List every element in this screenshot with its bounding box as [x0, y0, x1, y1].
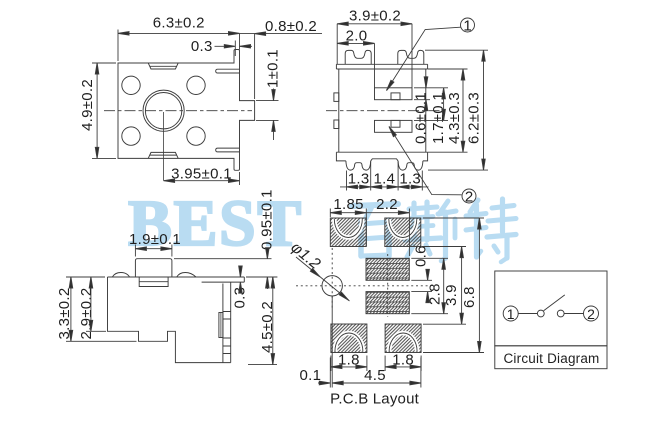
svg-text:2: 2	[465, 188, 473, 205]
svg-text:3.9: 3.9	[443, 284, 460, 306]
svg-text:0.95±0.1: 0.95±0.1	[259, 189, 276, 250]
svg-text:4.5: 4.5	[364, 367, 386, 384]
svg-text:4.9±0.2: 4.9±0.2	[79, 79, 96, 131]
svg-text:0.6: 0.6	[412, 245, 429, 267]
svg-text:4.3±0.3: 4.3±0.3	[446, 92, 463, 144]
svg-text:P.C.B Layout: P.C.B Layout	[330, 391, 419, 408]
svg-text:0.1: 0.1	[300, 367, 322, 384]
svg-text:6.2±0.3: 6.2±0.3	[466, 92, 483, 144]
svg-text:3.9±0.2: 3.9±0.2	[349, 7, 401, 24]
svg-text:6.8: 6.8	[461, 286, 478, 308]
svg-text:1±0.1: 1±0.1	[265, 49, 282, 88]
svg-text:Circuit Diagram: Circuit Diagram	[503, 351, 599, 366]
svg-text:2: 2	[587, 306, 595, 322]
svg-text:0.8±0.2: 0.8±0.2	[265, 18, 317, 35]
svg-text:3.95±0.1: 3.95±0.1	[171, 165, 232, 182]
svg-text:2.8: 2.8	[427, 283, 444, 305]
svg-text:2.2: 2.2	[376, 196, 398, 213]
svg-text:0.3: 0.3	[191, 38, 213, 55]
svg-text:6.3±0.2: 6.3±0.2	[153, 15, 205, 32]
svg-text:1.3: 1.3	[399, 171, 421, 188]
svg-text:1.3: 1.3	[348, 171, 370, 188]
svg-text:1.4: 1.4	[374, 171, 396, 188]
svg-text:1: 1	[507, 306, 515, 322]
svg-text:1: 1	[463, 17, 471, 34]
svg-text:1.85: 1.85	[333, 196, 363, 213]
svg-text:φ1.2: φ1.2	[287, 239, 323, 273]
svg-text:1.9±0.1: 1.9±0.1	[129, 231, 181, 248]
